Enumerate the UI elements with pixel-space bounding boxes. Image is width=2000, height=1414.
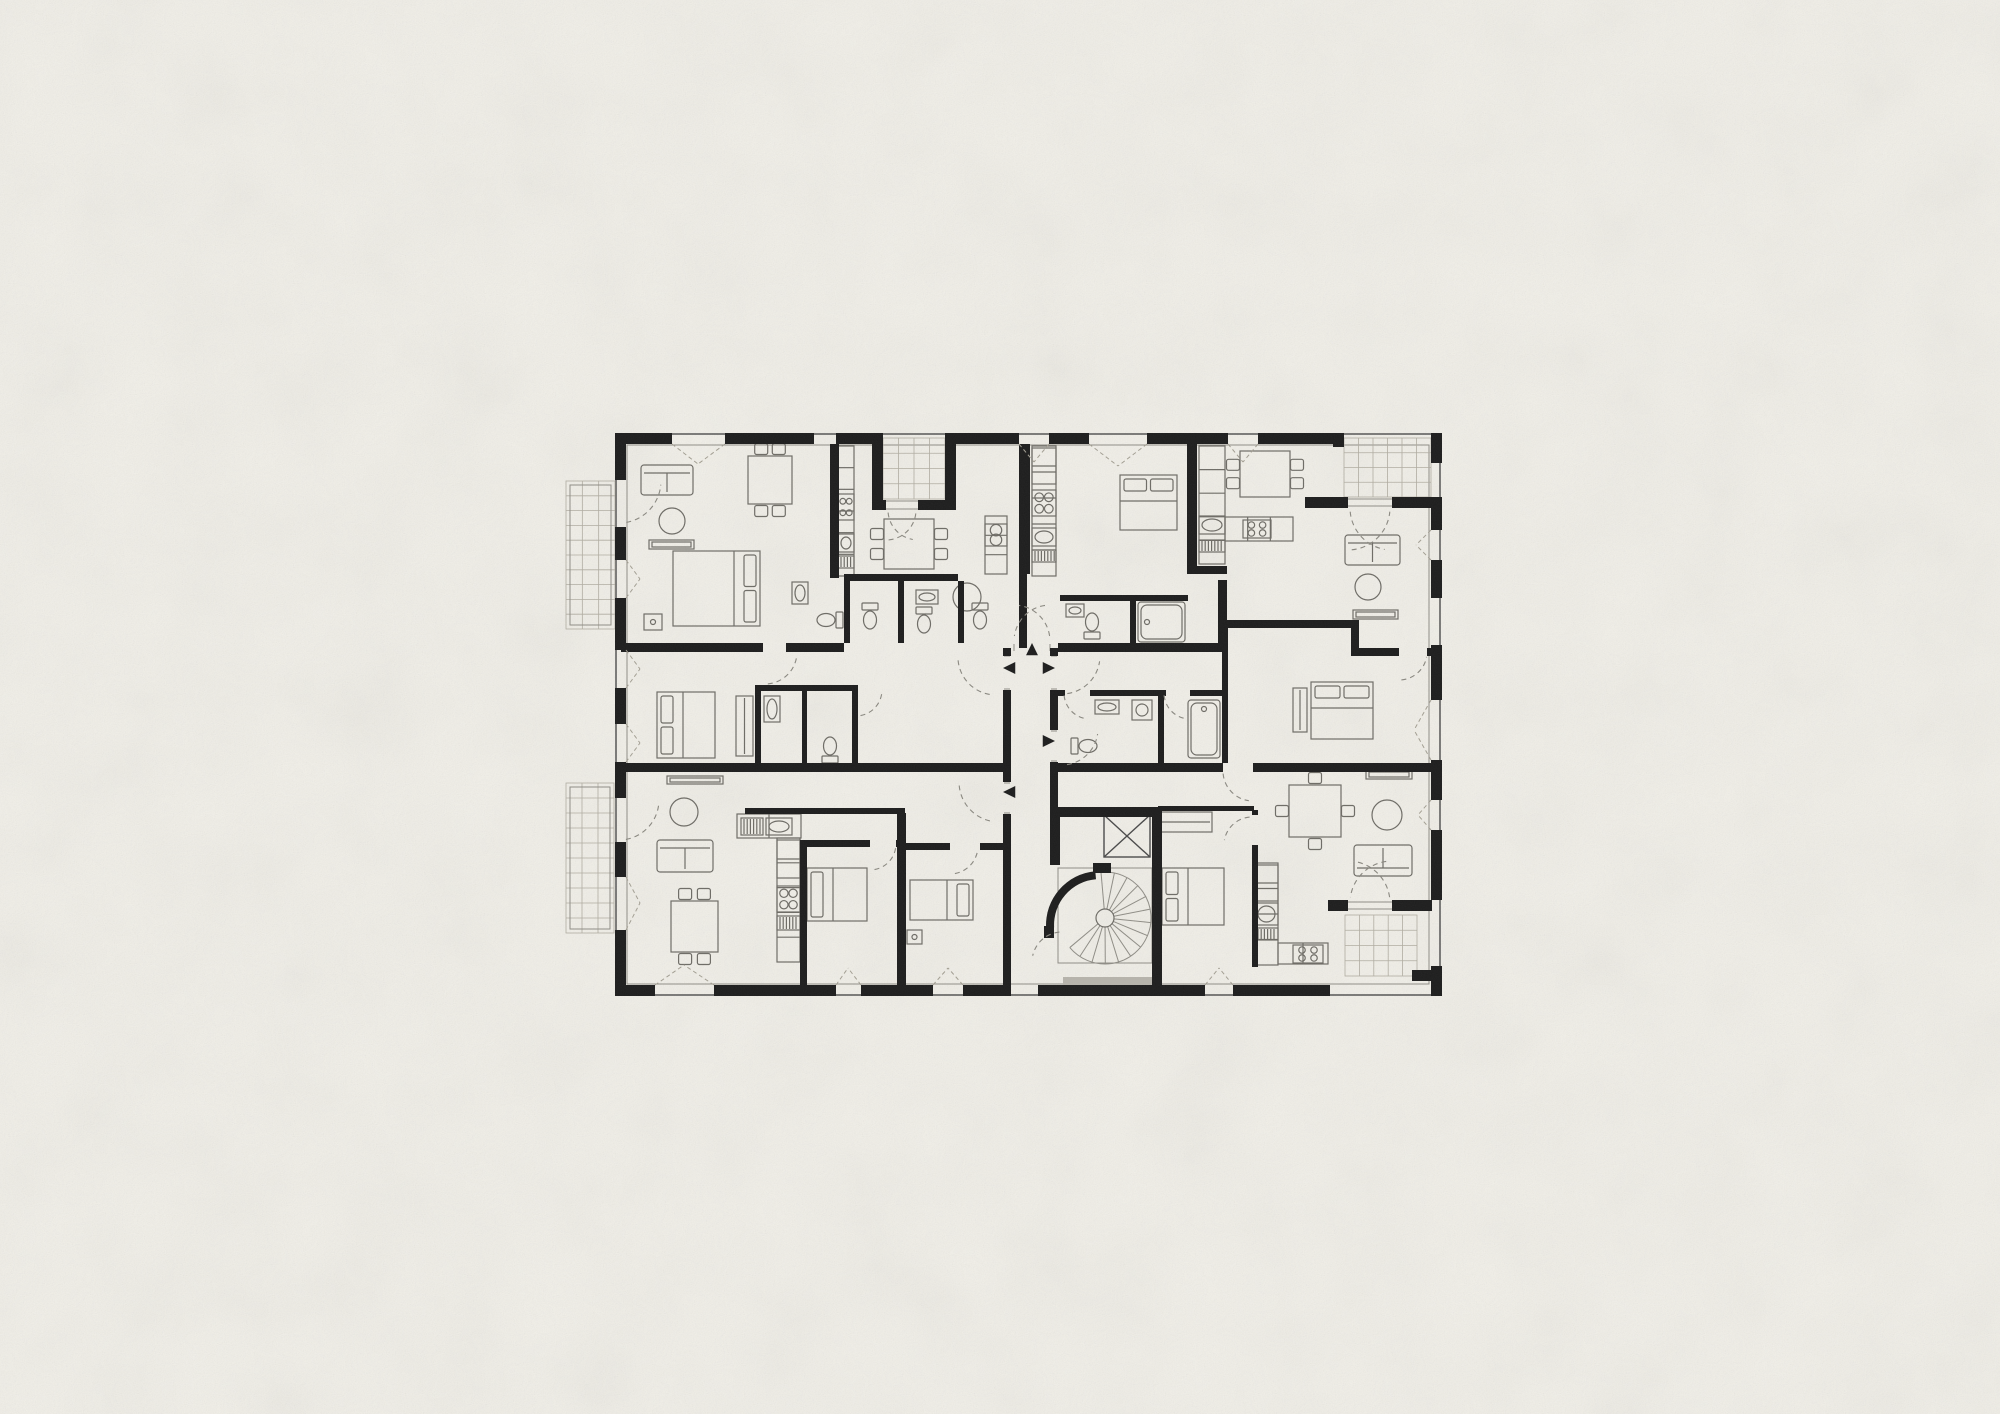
- interior-wall: [1058, 690, 1065, 696]
- stair-core-wall: [1152, 807, 1162, 995]
- interior-wall: [800, 840, 870, 847]
- interior-wall: [1253, 763, 1431, 772]
- loggia-jamb-wall: [945, 433, 956, 510]
- interior-wall: [621, 763, 1011, 772]
- outer-wall-segment: [1258, 433, 1333, 444]
- outer-wall-segment: [1147, 433, 1228, 444]
- interior-wall: [1158, 806, 1254, 811]
- interior-wall: [1058, 763, 1223, 772]
- outer-wall-segment: [1049, 433, 1089, 444]
- outer-wall-segment: [615, 985, 655, 996]
- outer-wall-segment: [615, 688, 626, 724]
- corridor-wall: [1003, 690, 1011, 782]
- outer-wall-segment: [1412, 970, 1432, 981]
- outer-wall-segment: [1431, 760, 1442, 800]
- outer-wall-segment: [615, 433, 626, 480]
- stair-core-wall: [1050, 817, 1060, 865]
- outer-wall-segment: [1431, 497, 1442, 530]
- loggia-jamb-wall: [1333, 433, 1344, 447]
- outer-wall-segment: [1431, 560, 1442, 598]
- corridor-wall: [1050, 762, 1058, 807]
- paper-canvas: [0, 0, 2000, 1414]
- floor-plan-drawing: [0, 0, 2000, 1414]
- interior-wall: [786, 643, 844, 652]
- outer-wall-segment: [725, 433, 814, 444]
- interior-wall: [830, 444, 839, 578]
- interior-wall: [1130, 601, 1136, 647]
- interior-wall: [745, 808, 905, 814]
- outer-wall-segment: [615, 527, 626, 560]
- interior-wall: [1187, 444, 1197, 572]
- interior-wall: [1222, 656, 1228, 763]
- interior-wall: [1351, 648, 1399, 656]
- stair-curved-wall-cap: [1044, 926, 1054, 938]
- outer-wall-segment: [1233, 985, 1330, 996]
- interior-wall: [1019, 444, 1030, 574]
- interior-wall: [800, 845, 807, 985]
- interior-wall: [1090, 690, 1166, 696]
- bath-wall: [852, 685, 858, 763]
- interior-wall: [846, 574, 958, 581]
- outer-wall-segment: [1431, 433, 1442, 463]
- loggia-parapet-wall: [1305, 497, 1348, 508]
- loggia-parapet-wall: [1392, 900, 1432, 911]
- outer-wall-segment: [615, 842, 626, 877]
- bath-wall: [802, 691, 807, 763]
- outer-wall-segment: [1431, 966, 1442, 996]
- paper-texture-fine: [0, 0, 2000, 1414]
- loggia-parapet-wall: [1328, 900, 1348, 911]
- corridor-wall: [1050, 648, 1058, 656]
- interior-wall: [844, 574, 850, 643]
- bath-wall: [755, 691, 761, 763]
- loggia-parapet-wall: [918, 500, 956, 510]
- interior-wall: [898, 581, 904, 643]
- interior-wall: [1019, 574, 1027, 648]
- bath-wall: [755, 685, 858, 691]
- outer-wall-segment: [615, 598, 626, 650]
- interior-wall: [903, 843, 950, 850]
- interior-wall: [1158, 696, 1164, 763]
- outer-wall-segment: [714, 985, 836, 996]
- interior-wall: [1227, 620, 1359, 628]
- interior-wall: [1060, 595, 1188, 601]
- interior-wall: [1427, 648, 1442, 656]
- interior-wall: [958, 581, 964, 643]
- interior-wall: [1252, 845, 1258, 967]
- stair-landing: [1063, 977, 1152, 985]
- interior-wall: [1058, 643, 1224, 652]
- interior-wall: [621, 643, 763, 652]
- interior-wall: [1222, 620, 1228, 656]
- stair-curved-wall-cap: [1093, 863, 1111, 873]
- corridor-wall: [1003, 648, 1011, 656]
- interior-wall: [1187, 566, 1227, 574]
- interior-wall: [1190, 690, 1224, 696]
- stair-core-wall: [1050, 807, 1162, 817]
- outer-wall-segment: [956, 433, 1019, 444]
- interior-wall: [980, 843, 1007, 850]
- corridor-wall: [1003, 814, 1011, 995]
- outer-wall-segment: [836, 433, 872, 444]
- loggia-jamb-wall: [872, 433, 883, 510]
- corridor-wall: [1050, 690, 1058, 730]
- loggia-parapet-wall: [872, 500, 886, 510]
- outer-wall-segment: [1431, 830, 1442, 900]
- outer-wall-segment: [1038, 985, 1205, 996]
